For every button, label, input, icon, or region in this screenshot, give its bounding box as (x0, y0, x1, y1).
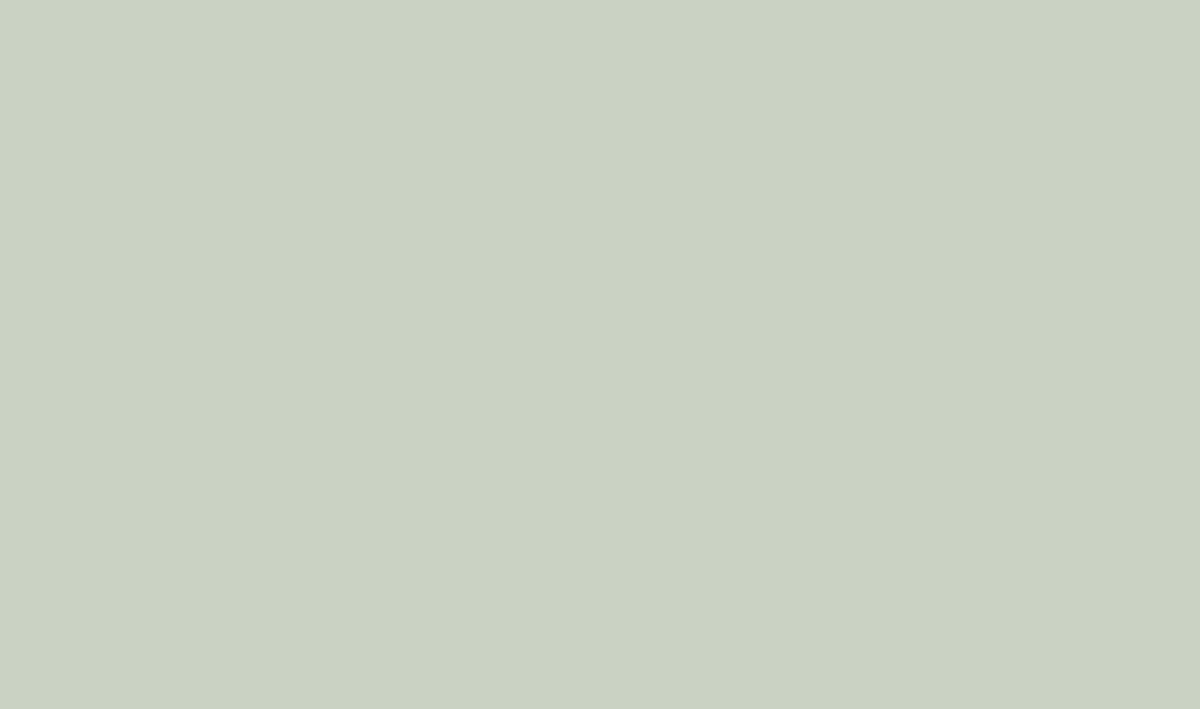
ground-base (0, 0, 1200, 709)
architectural-rendering: Bird's-eye masterplan rendering of a riv… (0, 0, 1200, 709)
scene-canvas: Bird's-eye masterplan rendering of a riv… (0, 0, 1200, 709)
